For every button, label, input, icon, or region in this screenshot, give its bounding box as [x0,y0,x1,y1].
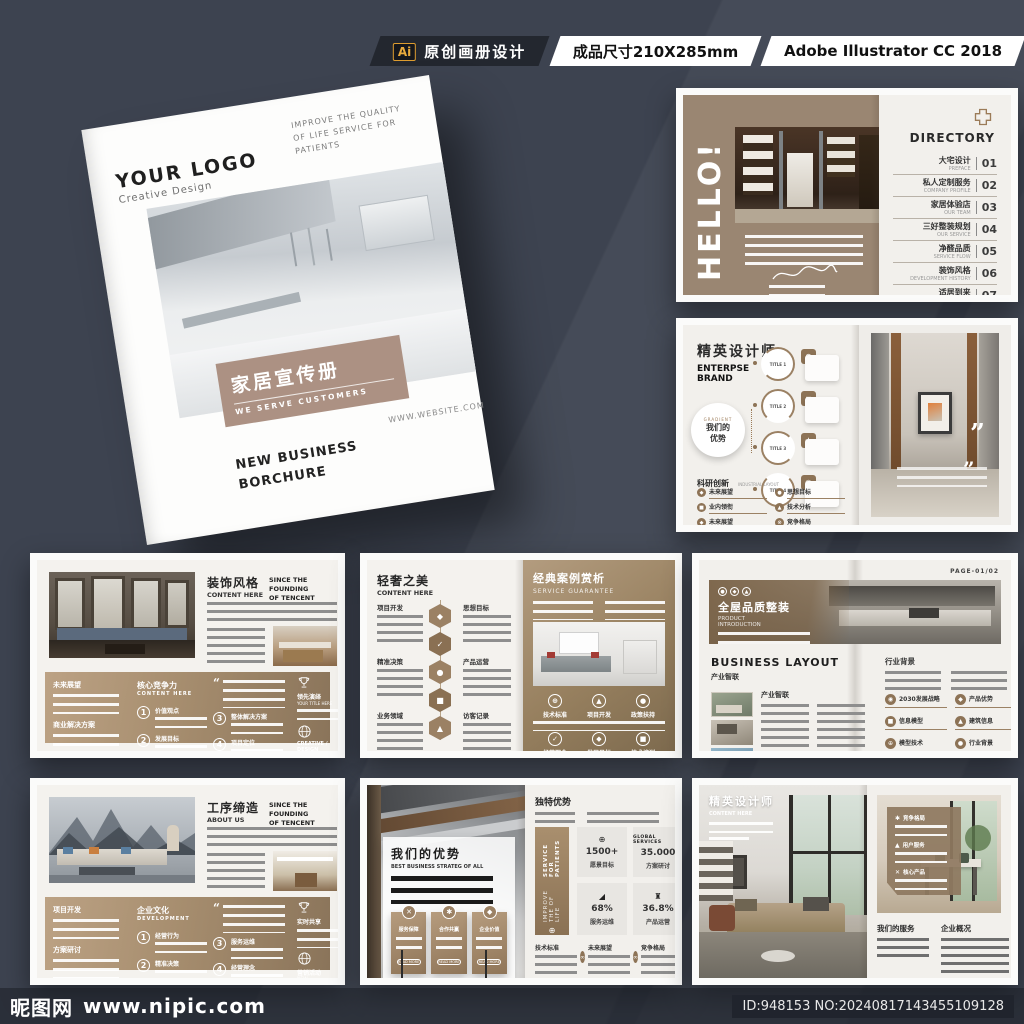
step-2: 2 发展目标 [137,734,207,751]
bullet-item: ■信息模型 [885,716,947,738]
overview-block: 企业概况 [941,923,1009,974]
panel-block1: 未来展望 [53,680,119,714]
page-number: PAGE-01/02 [950,568,999,575]
enterprise-brand-spread: 精英设计师 ENTERPSE BRAND GRADIENT 我们的 优势 TIT… [676,318,1018,532]
mural-livingroom-photo [49,797,195,883]
showroom-photo [533,622,665,686]
case-item: ◆发展目标 [577,732,621,751]
market-icon: ♜ [654,892,661,901]
top-banner: Ai 原创画册设计 成品尺寸210X285mm Adobe Illustrato… [365,36,1020,66]
size-label: 成品尺寸210X285mm [573,41,738,62]
step-4: 4 项目定位 [213,738,283,751]
step-3: 3 服务运维 [213,937,283,959]
bottom-col: 未来展望 [588,943,630,974]
step-1: 1 经营行为 [137,931,207,953]
cover-tagline: IMPROVE THE QUALITY OF LIFE SERVICE FOR … [290,102,405,158]
advantage-spread: 我们的优势 BEST BUSINESS STRATEG OF ALL ✕ 服务保… [360,778,682,985]
stat-tile: ♜ 36.8% 产品运营 [633,883,675,935]
step-3: 3 整体解决方案 [213,712,283,734]
diamond-icon: ◆ [483,905,497,919]
hallway-photo: ” ” [871,333,999,517]
software-badge: Adobe Illustrator CC 2018 [761,36,1024,66]
bullet-item: ◉2030发展战略 [885,694,947,716]
hub-connector [751,409,752,453]
text-lines [223,905,285,933]
photo-overlay-card: ✱竞争格局 ▲用户服务 ✕核心产品 [887,807,961,895]
kitchen-small-photo [273,626,337,666]
advantage-cards: ✕ 服务保障 READ MORE ✱ 合作共赢 READ MORE ◆ 企业价值 [391,912,507,974]
case-row-1: ⊕技术标准 ▲项目开发 ●政策扶持 [533,694,665,731]
read-more-button: READ MORE [437,959,461,965]
globe-block: 营销活动 NEW PRODUCTS [297,951,330,978]
lux-item: 项目开发 [377,602,425,643]
directory-item: 家居体验店OUR TEAM 03 [893,197,997,219]
process-since: SINCE THE FOUNDING OF TENCENT [269,801,338,828]
quote-mark-icon: ” [970,419,985,449]
card-item: ✕核心产品 [895,868,953,876]
step-2: 2 精准决策 [137,959,207,978]
case-item: ▲项目开发 [577,694,621,731]
directory-item: 装饰风格DEVELOPMENT HISTORY 06 [893,263,997,285]
hello-title: HELLO! [693,113,727,281]
case-page: 经典案例赏析 SERVICE GUARANTEE ⊕技术标准 ▲项目开发 ●政策… [523,560,675,751]
gear-icon: ✱ [442,905,456,919]
trophy-block: 实时共享 [297,901,338,948]
nipic-url: www.nipic.com [83,994,266,1018]
advantage-icon: ◆ [955,694,966,705]
advantage-card: ✱ 合作共赢 READ MORE [431,912,466,974]
signature-icon [769,263,839,285]
bullet-item: ●行业背景 [955,738,1011,751]
thumb-photo-3 [711,748,753,751]
wall-frame [918,392,952,434]
tech-icon: ⊕ [548,694,562,708]
bullet-item: ◆产品优势 [955,694,1011,716]
lux-beauty-spread: 轻奢之美 CONTENT HERE ◆ ✓ ● ■ ▲ 项目开发 精准决策 业务… [360,553,682,758]
case-intro-lines [533,601,665,620]
policy-icon: ● [636,694,650,708]
designer-heading: 精英设计师 CONTENT HERE [709,793,774,840]
chart-icon: ◢ [599,892,605,901]
size-badge: 成品尺寸210X285mm [549,36,761,66]
globe-icon [297,724,312,739]
bullet-item: ◆未来展望 [697,515,771,525]
case-item: ⊕技术标准 [533,694,577,731]
dining-photo: ✱竞争格局 ▲用户服务 ✕核心产品 [877,795,1001,913]
text-lines [207,628,265,666]
case-item: ●政策扶持 [621,694,665,731]
strategy-icon: ◉ [885,694,896,705]
banner-circles: ● ◆ ▲ [718,587,840,596]
industry-link-block: 产业智联 [761,690,865,751]
bullet-item: ●思想目标 [775,485,849,500]
deco-heading: 装饰风格 CONTENT HERE [207,574,263,599]
goal-icon: ◆ [592,732,606,746]
nipic-logo: 昵图网 www.nipic.com [10,992,266,1021]
node-card [805,355,839,381]
text-lines [207,602,337,622]
trophy-icon [297,676,311,690]
read-more-button: READ MORE [477,959,501,965]
wardrobe-photo [735,127,885,223]
armchair [709,905,735,931]
step-4: 4 经营理念 [213,963,283,978]
bullet-icon: ⊗ [775,518,784,525]
bullet-item: ■业内领衔 [697,500,771,515]
thumb-photo-1 [711,692,753,717]
directory-item: 适居到来PRODUCT INTRODUCTION 07 [893,285,997,295]
directory-list: 大宅设计PREFACE 01 私人定制服务COMPANY PROFILE 02 … [893,153,997,295]
service-ribbon: SERVICE FOR PATIENTS IMPROVE THE OF LIFE… [535,827,569,935]
process-spread: 工序缔造 ABOUT US SINCE THE FOUNDING OF TENC… [30,778,345,985]
business-layout-heading: BUSINESS LAYOUT 产业智联 [711,656,839,682]
lux-item: 精准决策 [377,656,425,697]
bullet-item: ▲技术分析 [775,500,849,515]
vision-icon: ⊕ [599,835,606,844]
model-icon: ■ [885,716,896,727]
advantage-card: ✕ 服务保障 READ MORE [391,912,426,974]
text-lines [223,680,285,708]
thumb-photo-2 [711,720,753,745]
designer-right-page: ✱竞争格局 ▲用户服务 ✕核心产品 我们的服务 企业概况 [867,785,1011,978]
case-row-2: ✓经营理念 ◆发展目标 ■技术培训 [533,732,665,751]
advantage-card: ◆ 企业价值 READ MORE [472,912,507,974]
nipic-site-name: 昵图网 [10,992,73,1021]
bullet-icon: ◆ [697,488,706,497]
text-lines [207,827,337,847]
image-id-badge: ID:948153 NO:20240817143455109128 [732,995,1014,1018]
architecture-photo: 我们的优势 BEST BUSINESS STRATEG OF ALL ✕ 服务保… [367,785,525,978]
banner-overlay: ● ◆ ▲ 全屋品质整装 PRODUCT INTRODUCTION [709,580,849,644]
directory-item: 三好整装规划OUR SERVICE 04 [893,219,997,241]
panel-block2: 商业解决方案 [53,720,119,751]
hexagon-icon: ■ [429,688,451,712]
lux-item: 访客记录 [463,710,513,751]
idea-icon: ✓ [548,732,562,746]
cover-footer: NEW BUSINESS BORCHURE [234,437,362,496]
lux-heading: 轻奢之美 CONTENT HERE [377,572,433,597]
globe-block: CREATIVE / DESIGN NEW PRODUCTS [297,724,330,751]
bookshelf [699,841,733,901]
directory-title: DIRECTORY [910,131,995,145]
training-icon: ■ [636,732,650,746]
trophy-icon [297,901,311,915]
coffee-table [761,950,795,962]
bullet-icon: ▲ [775,503,784,512]
bottom-col: 竞争格局 [641,943,675,974]
link-icon: ∞ [633,951,638,963]
stat-tile: GLOBAL SERVICES 35.000 方案研讨 [633,827,675,877]
user-icon: ▲ [895,842,900,849]
core-heading: 核心竞争力 CONTENT HERE [137,680,192,697]
quote-mark-icon: “ [213,676,220,690]
hexagon-icon: ▲ [429,716,451,740]
directory-item: 净醛品质SERVICE FLOW 05 [893,241,997,263]
stat-tile: ⊕ 1500+ 愿景目标 [577,827,627,877]
bullet-icon: ■ [697,503,706,512]
deco-since: SINCE THE FOUNDING OF TENCENT [269,576,338,603]
case-item: ✓经营理念 [533,732,577,751]
bottom-columns: 技术标准 ∞ 未来展望 ∞ 竞争格局 [535,943,671,974]
card-item: ▲用户服务 [895,841,953,849]
tools-icon: ✕ [402,905,416,919]
panel-block2: 方案研讨 [53,945,119,978]
software-label: Adobe Illustrator CC 2018 [784,42,1002,60]
hello-directory-spread: HELLO! DIRECTORY 大宅设计PREFACE 01 [676,88,1018,302]
lux-item: 思想目标 [463,602,513,643]
node-card [805,439,839,465]
research-bullets: ◆未来展望 ●思想目标 ■业内领衔 ▲技术分析 ◆未来展望 ⊗竞争格局 [697,485,849,525]
globe-icon [297,951,312,966]
bullet-item: ⊕模型技术 [885,738,947,751]
modern-livingroom-photo: 精英设计师 CONTENT HERE [699,785,867,978]
pattern-icon: ✱ [895,815,900,822]
case-item: ■技术培训 [621,732,665,751]
process-brown-panel: 项目开发 方案研讨 企业文化 DEVELOPMENT 1 经营行为 2 精准决策… [45,897,330,970]
design-badge: Ai 原创画册设计 [370,36,550,66]
kitchen-banner-photo: ● ◆ ▲ 全屋品质整装 PRODUCT INTRODUCTION [709,580,1001,644]
cross-icon [973,107,993,127]
directory-item: 大宅设计PREFACE 01 [893,153,997,175]
node-card [805,397,839,423]
hello-paragraph-lines [745,235,863,265]
brochure-cover-mockup: YOUR LOGO Creative Design IMPROVE THE QU… [81,75,494,545]
signature-caption-lines [769,285,825,295]
building-icon: ▲ [955,716,966,727]
project-icon: ▲ [592,694,606,708]
hub-circle: GRADIENT 我们的 优势 [691,403,745,457]
quote-mark-icon: “ [213,901,220,915]
lux-item: 产品运营 [463,656,513,697]
link-icon: ∞ [580,951,585,963]
kitchen-small-photo [273,851,337,891]
directory-item: 私人定制服务COMPANY PROFILE 02 [893,175,997,197]
cover-website: WWW.WEBSITE.COM [388,400,486,424]
trophy-block: 领先演绎 YOUR TITLE HERE [297,676,338,720]
bottom-col: 技术标准 [535,943,577,974]
quality-package-spread: PAGE-01/02 ● ◆ ▲ 全屋品质整装 PRODUCT INTRODUC… [692,553,1018,758]
hello-left-page: HELLO! [683,95,879,295]
design-label: 原创画册设计 [425,41,527,62]
brand-right-page: ” ” [859,325,1011,525]
designer-spread: 精英设计师 CONTENT HERE [692,778,1018,985]
step-1: 1 价值观点 [137,706,207,728]
hexagon-icon: ● [429,660,451,684]
card-item: ✱竞争格局 [895,814,953,822]
bullet-item: ⊗竞争格局 [775,515,849,525]
deco-style-spread: 装饰风格 CONTENT HERE SINCE THE FOUNDING OF … [30,553,345,758]
plant [965,825,991,851]
core-heading: 企业文化 DEVELOPMENT [137,905,190,922]
target-icon: ⊕ [549,926,556,935]
technology-icon: ⊕ [885,738,896,749]
bullet-icon: ◆ [697,518,706,525]
directory-page: DIRECTORY 大宅设计PREFACE 01 私人定制服务COMPANY P… [879,95,1011,295]
service-block: 我们的服务 [877,923,929,958]
quality-bullets: ◉2030发展战略 ◆产品优势 ■信息模型 ▲建筑信息 ⊕模型技术 ●行业背景 [885,694,1011,751]
hexagon-icon: ◆ [429,604,451,628]
bullet-item: ▲建筑信息 [955,716,1011,738]
bullet-item: ◆未来展望 [697,485,771,500]
watermark-bar: 昵图网 www.nipic.com ID:948153 NO:202408171… [0,988,1024,1024]
deco-brown-panel: 未来展望 商业解决方案 核心竞争力 CONTENT HERE 1 价值观点 2 … [45,672,330,743]
panel-block1: 项目开发 [53,905,119,939]
industry-icon: ● [955,738,966,749]
lux-item: 业务领域 [377,710,425,751]
brand-left-page: 精英设计师 ENTERPSE BRAND GRADIENT 我们的 优势 TIT… [683,325,859,525]
chinese-livingroom-photo [49,572,195,658]
unique-advantage-page: 独特优势 SERVICE FOR PATIENTS IMPROVE THE OF… [525,785,675,978]
stat-tile: ◢ 68% 服务运维 [577,883,627,935]
bullet-icon: ● [775,488,784,497]
ai-logo-icon: Ai [393,42,416,60]
quote-mark-icon: ” [963,457,975,481]
text-lines [207,853,265,891]
hexagon-icon: ✓ [429,632,451,656]
industry-bg-heading: 行业背景 [885,656,1007,691]
process-heading: 工序缔造 ABOUT US [207,799,259,824]
black-text-bars [391,876,493,904]
product-icon: ✕ [895,869,900,876]
